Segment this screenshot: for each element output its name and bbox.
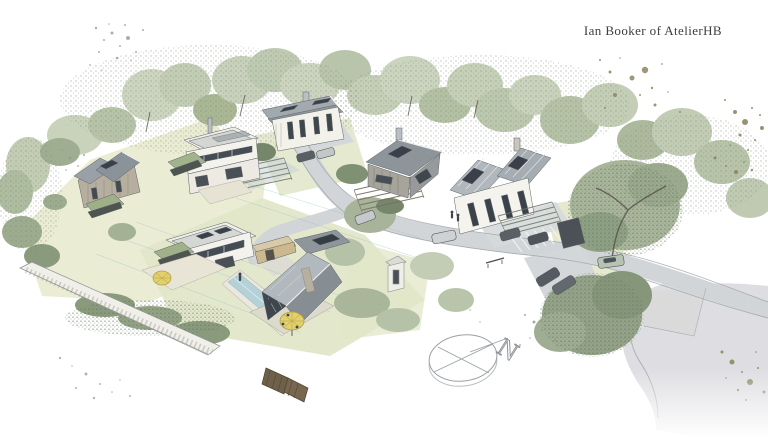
credit-text: Ian Booker of AtelierHB (584, 23, 722, 38)
paint-speckles-below-wall (59, 357, 131, 399)
garden-shed (386, 256, 406, 292)
timber-fence (262, 368, 308, 402)
watercolor-fade (600, 368, 768, 438)
compass-rose: N (426, 330, 524, 390)
bench (486, 258, 504, 268)
site-plan-drawing: N Ian Booker (0, 0, 768, 438)
parasol-umbrella-icon (153, 271, 171, 285)
architectural-site-illustration: N Ian Booker (0, 0, 768, 438)
